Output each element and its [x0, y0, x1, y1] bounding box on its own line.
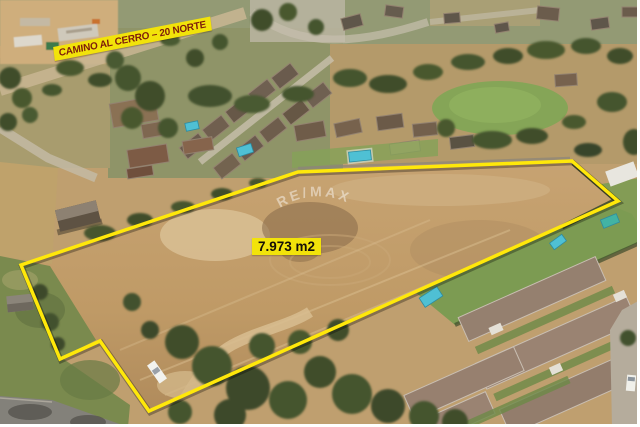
area-size-text: 7.973 m2: [258, 239, 315, 254]
aerial-photo: RE/MAX CAMINO AL CERRO – 20 NORTE 7.973 …: [0, 0, 640, 427]
aerial-photo-canvas: RE/MAX: [0, 0, 640, 427]
area-size-label: 7.973 m2: [252, 238, 321, 255]
white-car: [626, 375, 636, 392]
